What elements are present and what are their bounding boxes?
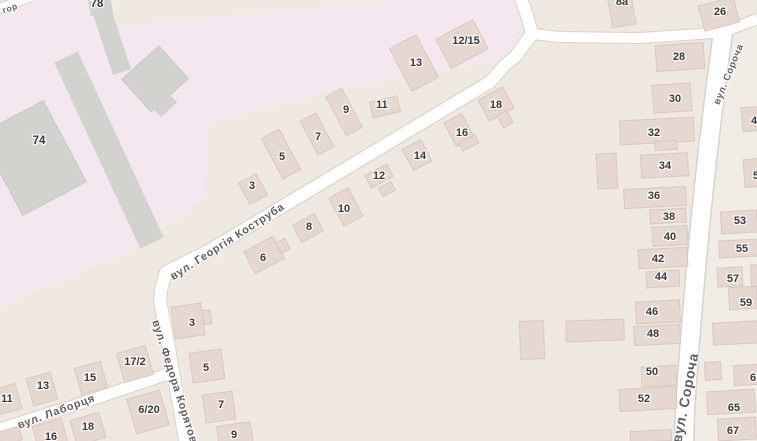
svg-text:17/2: 17/2	[124, 356, 145, 368]
svg-text:7: 7	[315, 131, 321, 143]
svg-text:3: 3	[189, 317, 195, 329]
svg-text:12/15: 12/15	[452, 35, 480, 47]
svg-text:5: 5	[279, 151, 285, 163]
svg-text:6: 6	[750, 372, 756, 384]
svg-text:9: 9	[343, 104, 349, 116]
svg-text:13: 13	[410, 57, 422, 69]
svg-text:14: 14	[414, 150, 427, 162]
svg-text:11: 11	[376, 99, 388, 111]
svg-text:50: 50	[646, 366, 658, 378]
svg-text:15: 15	[84, 372, 96, 384]
svg-text:12: 12	[373, 170, 385, 182]
svg-text:44: 44	[655, 271, 668, 283]
svg-text:8а: 8а	[616, 0, 629, 8]
svg-text:5: 5	[203, 362, 209, 374]
svg-text:6: 6	[260, 252, 266, 264]
svg-text:6/20: 6/20	[138, 404, 159, 416]
svg-text:28: 28	[673, 51, 685, 63]
svg-text:67: 67	[727, 425, 739, 437]
svg-text:30: 30	[669, 93, 681, 105]
svg-text:16: 16	[456, 127, 468, 139]
svg-text:3: 3	[249, 180, 255, 192]
svg-text:11: 11	[1, 393, 13, 405]
svg-text:18: 18	[82, 421, 94, 433]
svg-text:8: 8	[306, 221, 312, 233]
svg-text:52: 52	[638, 393, 650, 405]
svg-text:40: 40	[664, 231, 676, 243]
svg-text:48: 48	[647, 328, 659, 340]
svg-text:65: 65	[728, 402, 740, 414]
svg-text:18: 18	[490, 99, 502, 111]
svg-text:38: 38	[663, 211, 675, 223]
svg-text:36: 36	[648, 190, 660, 202]
svg-text:34: 34	[659, 160, 672, 172]
svg-text:26: 26	[714, 6, 726, 18]
svg-text:7: 7	[218, 399, 224, 411]
svg-text:32: 32	[648, 127, 660, 139]
svg-text:9: 9	[231, 429, 237, 441]
svg-text:5: 5	[753, 170, 757, 182]
svg-text:16: 16	[45, 431, 57, 441]
svg-text:46: 46	[646, 306, 658, 318]
svg-text:57: 57	[727, 273, 739, 285]
svg-text:42: 42	[652, 253, 664, 265]
svg-text:13: 13	[37, 380, 49, 392]
svg-text:59: 59	[740, 297, 752, 309]
svg-text:10: 10	[338, 203, 350, 215]
svg-text:55: 55	[736, 243, 748, 255]
svg-text:74: 74	[33, 135, 46, 147]
svg-text:4: 4	[751, 115, 757, 127]
svg-text:53: 53	[734, 215, 746, 227]
svg-text:78: 78	[91, 0, 104, 10]
